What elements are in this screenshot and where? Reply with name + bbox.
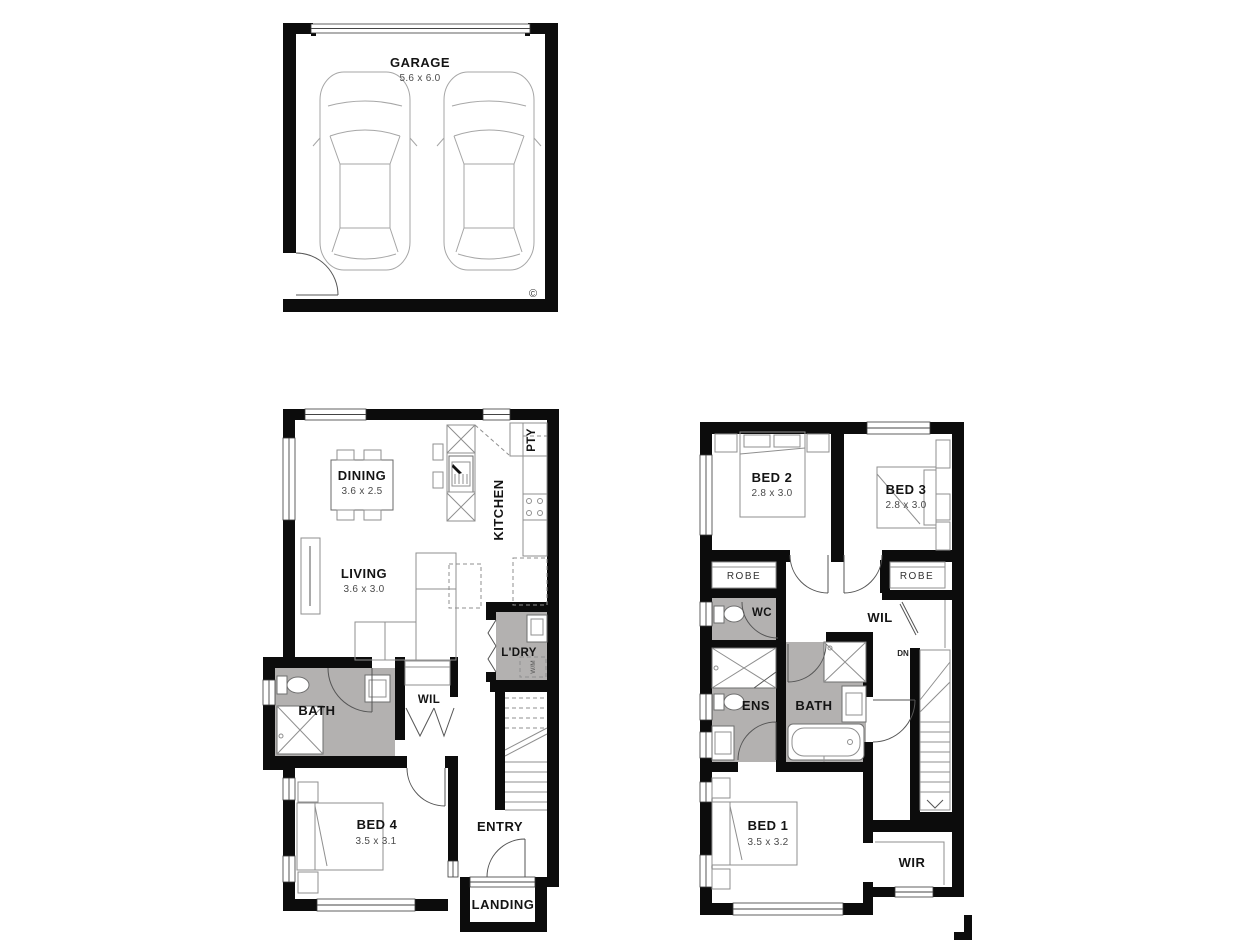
cooktop-icon: [523, 494, 547, 520]
stairs-dn-label: DN: [897, 649, 909, 658]
vanity-icon: [712, 726, 734, 760]
window: [700, 455, 712, 535]
upper-wil-label: WIL: [867, 610, 892, 625]
window: [700, 694, 712, 720]
entry-label: ENTRY: [477, 819, 523, 834]
window: [283, 438, 295, 520]
bed2-label: BED 2: [752, 470, 793, 485]
window: [305, 409, 366, 420]
window: [733, 903, 843, 915]
bed2-dims: 2.8 x 3.0: [751, 488, 792, 499]
bed3-dims: 2.8 x 3.0: [885, 500, 926, 511]
pantry-door: [475, 425, 509, 455]
stair-arrow: [927, 800, 943, 808]
washer-label: W/M: [530, 660, 537, 673]
dining-setting: [331, 450, 393, 520]
window: [483, 409, 510, 420]
kitchen-island: [433, 425, 475, 521]
ens-label: ENS: [742, 698, 770, 713]
window: [700, 855, 712, 887]
window: [283, 856, 295, 882]
upper-bath-label: BATH: [795, 698, 832, 713]
shower-icon: [824, 642, 866, 682]
window: [700, 782, 712, 802]
front-door-swing: [487, 839, 525, 877]
living-dims: 3.6 x 3.0: [343, 584, 384, 595]
floorplan-canvas: GARAGE 5.6 x 6.0 ©: [0, 0, 1246, 952]
toilet-icon: [277, 676, 309, 694]
garage-dims: 5.6 x 6.0: [399, 73, 440, 84]
bed3-door-swing: [844, 555, 882, 593]
vanity-icon: [365, 675, 390, 702]
upper-floor-plan: BED 2 2.8 x 3.0 BED 3 2.8 x 3.0 ROBE ROB…: [698, 410, 978, 952]
vanity-icon: [842, 686, 866, 722]
bed4-label: BED 4: [357, 817, 398, 832]
laundry-label: L'DRY: [501, 647, 537, 659]
bed4-dims: 3.5 x 3.1: [355, 836, 396, 847]
robe2-label: ROBE: [727, 571, 761, 582]
bed1-dims: 3.5 x 3.2: [747, 837, 788, 848]
kitchen-label: KITCHEN: [491, 479, 506, 540]
wc-label: WC: [752, 607, 772, 619]
pantry-label: PTY: [526, 428, 538, 452]
tv-unit: [301, 538, 320, 614]
fridge-space: [513, 558, 547, 605]
window: [895, 887, 933, 897]
window: [263, 680, 275, 705]
bed4-door-swing: [407, 768, 445, 806]
linen-label: WIL: [418, 694, 440, 706]
robe3-label: ROBE: [900, 571, 934, 582]
wir-label: WIR: [899, 855, 926, 870]
garage-side-door-swing: [296, 253, 338, 295]
window: [317, 899, 415, 911]
shower-icon: [712, 648, 776, 688]
bed1-furniture: [712, 778, 797, 889]
dining-label: DINING: [338, 468, 387, 483]
living-label: LIVING: [341, 566, 387, 581]
toilet-icon: [714, 694, 744, 710]
landing-label: LANDING: [472, 897, 535, 912]
ground-floor-plan: DINING 3.6 x 2.5 LIVING 3.6 x 3.0: [263, 406, 575, 952]
entry-sidelight: [448, 861, 458, 877]
bed2-door-swing: [790, 555, 828, 593]
copyright-mark: ©: [529, 288, 537, 300]
window: [867, 422, 930, 434]
staircase: [505, 698, 547, 810]
entry-threshold: [470, 877, 535, 887]
garage-plan: GARAGE 5.6 x 6.0 ©: [283, 20, 558, 312]
dashed-overhead: [449, 564, 481, 608]
upper-staircase: [920, 650, 950, 810]
linen-bifold: [406, 708, 454, 736]
laundry-bifold: [488, 620, 496, 672]
window: [283, 778, 295, 800]
bath-label: BATH: [298, 703, 335, 718]
window: [700, 602, 712, 626]
garage-door: [311, 24, 530, 33]
bathtub-icon: [788, 724, 864, 762]
window: [700, 732, 712, 758]
dining-dims: 3.6 x 2.5: [341, 486, 382, 497]
wil-door: [900, 602, 918, 635]
corner-notch: [954, 915, 972, 940]
bed3-label: BED 3: [886, 482, 927, 497]
bed1-door-swing: [873, 700, 915, 742]
bed1-label: BED 1: [748, 818, 789, 833]
garage-label: GARAGE: [390, 55, 450, 70]
